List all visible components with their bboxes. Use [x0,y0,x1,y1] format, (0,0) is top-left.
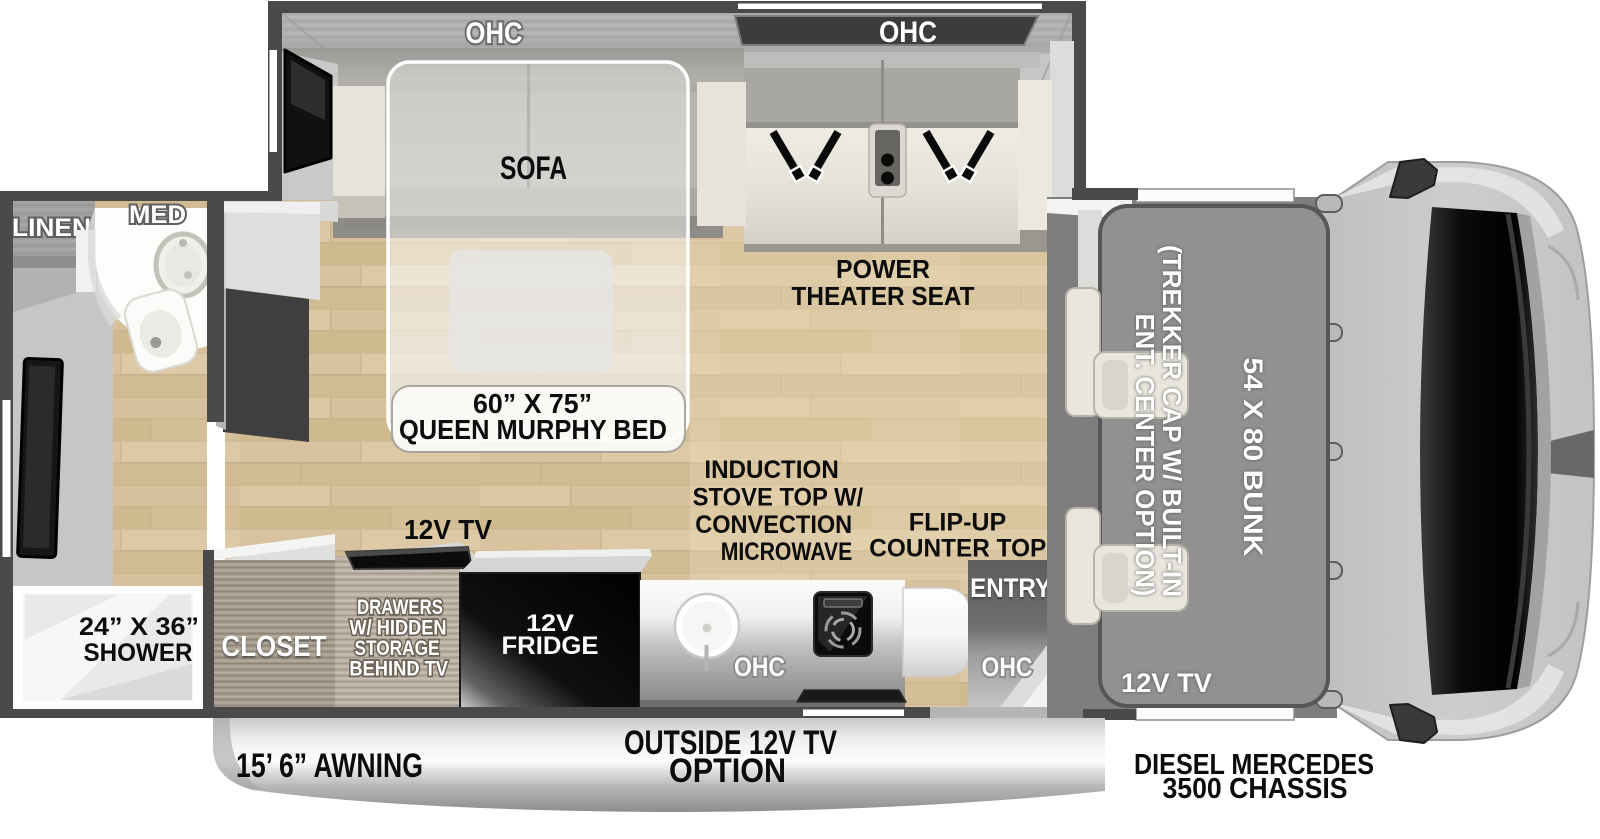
svg-text:OHC: OHC [982,652,1033,682]
svg-text:THEATER SEAT: THEATER SEAT [792,281,975,311]
svg-text:3500 CHASSIS: 3500 CHASSIS [1163,773,1348,805]
svg-text:FLIP-UP: FLIP-UP [909,509,1007,537]
svg-text:OHC: OHC [879,16,937,49]
svg-text:MED: MED [129,201,186,229]
svg-text:24” X 36”: 24” X 36” [79,613,199,641]
svg-text:OHC: OHC [734,652,785,682]
svg-text:CONVECTION: CONVECTION [695,511,852,539]
svg-text:MICROWAVE: MICROWAVE [721,538,853,566]
svg-text:15’ 6” AWNING: 15’ 6” AWNING [236,747,423,785]
svg-text:COUNTER TOP: COUNTER TOP [869,534,1046,562]
svg-text:OHC: OHC [466,17,523,50]
svg-text:FRIDGE: FRIDGE [502,632,599,660]
svg-text:54 X 80 BUNK: 54 X 80 BUNK [1238,358,1268,558]
svg-text:STOVE TOP W/: STOVE TOP W/ [693,484,864,512]
svg-text:CLOSET: CLOSET [222,631,327,663]
svg-text:ENTRY: ENTRY [970,573,1051,603]
svg-text:POWER: POWER [836,254,930,284]
svg-text:SHOWER: SHOWER [84,639,193,667]
svg-text:12V TV: 12V TV [1121,668,1212,698]
svg-text:12V TV: 12V TV [404,514,493,545]
svg-text:QUEEN MURPHY BED: QUEEN MURPHY BED [399,414,667,445]
svg-text:INDUCTION: INDUCTION [704,456,839,484]
svg-text:BEHIND TV: BEHIND TV [349,657,448,681]
svg-text:SOFA: SOFA [500,150,567,186]
svg-text:OPTION: OPTION [669,752,786,790]
